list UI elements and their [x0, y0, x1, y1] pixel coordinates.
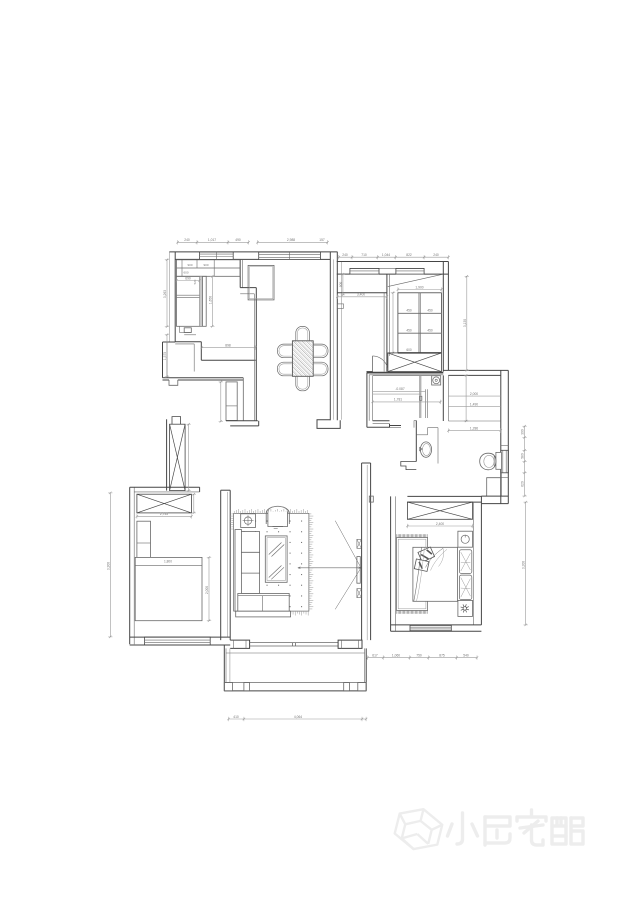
svg-text:2,000: 2,000	[470, 392, 478, 396]
svg-text:875: 875	[439, 653, 445, 657]
svg-text:1,060: 1,060	[392, 653, 400, 657]
svg-text:1,017: 1,017	[208, 238, 216, 242]
svg-text:600: 600	[183, 271, 188, 275]
svg-text:1,575: 1,575	[163, 352, 167, 360]
svg-text:410: 410	[233, 715, 239, 719]
svg-text:3,300: 3,300	[522, 561, 526, 569]
svg-text:2,000: 2,000	[205, 586, 209, 594]
svg-text:450: 450	[427, 328, 433, 332]
svg-text:450: 450	[427, 309, 433, 313]
svg-text:900: 900	[187, 263, 192, 267]
svg-text:898: 898	[225, 343, 231, 347]
svg-text:710: 710	[361, 253, 367, 257]
svg-text:540: 540	[463, 653, 469, 657]
svg-text:240: 240	[342, 253, 348, 257]
svg-text:3,400: 3,400	[357, 293, 365, 297]
svg-text:240: 240	[184, 238, 190, 242]
svg-text:1,900: 1,900	[415, 285, 423, 289]
svg-text:750: 750	[416, 653, 422, 657]
svg-text:3,263: 3,263	[163, 290, 167, 298]
svg-text:157: 157	[319, 238, 325, 242]
svg-text:822: 822	[406, 253, 412, 257]
svg-text:580: 580	[521, 453, 525, 459]
svg-text:1,044: 1,044	[382, 253, 390, 257]
svg-text:-0.087: -0.087	[395, 387, 405, 391]
svg-text:1,800: 1,800	[164, 560, 172, 564]
svg-text:617: 617	[372, 653, 378, 657]
svg-text:4,064: 4,064	[294, 715, 302, 719]
svg-text:450: 450	[406, 309, 412, 313]
svg-text:1,650: 1,650	[208, 296, 212, 304]
svg-text:900: 900	[203, 263, 208, 267]
svg-text:1,490: 1,490	[470, 402, 478, 406]
svg-text:2,988: 2,988	[287, 238, 295, 242]
svg-text:3,130: 3,130	[463, 319, 467, 327]
svg-text:1,286: 1,286	[470, 426, 478, 430]
svg-text:900: 900	[339, 282, 343, 288]
svg-text:490: 490	[235, 238, 241, 242]
svg-text:620: 620	[521, 481, 525, 487]
svg-text:240: 240	[433, 253, 439, 257]
svg-text:300: 300	[521, 429, 525, 435]
svg-text:450: 450	[406, 328, 412, 332]
svg-text:690: 690	[185, 276, 191, 280]
svg-text:600: 600	[406, 348, 412, 352]
svg-text:2,400: 2,400	[436, 522, 444, 526]
svg-text:1,781: 1,781	[394, 398, 402, 402]
svg-text:520: 520	[193, 279, 197, 284]
svg-text:3,900: 3,900	[106, 562, 110, 570]
svg-text:2,745: 2,745	[160, 512, 168, 516]
